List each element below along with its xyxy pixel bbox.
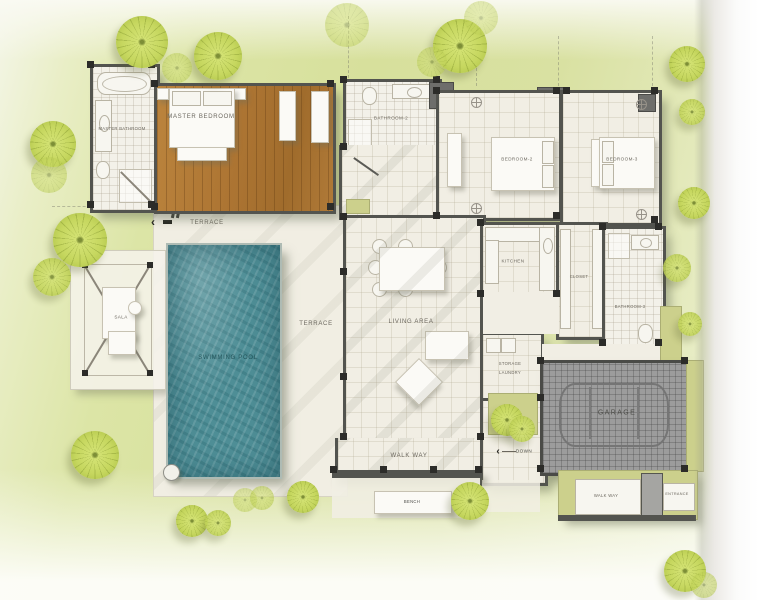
- nightstand: [157, 88, 169, 100]
- closet-label: CLOSET: [570, 275, 589, 279]
- wall-column: [477, 219, 484, 226]
- down-arrow-icon: ‹: [496, 447, 499, 457]
- toilet-icon: [638, 324, 653, 343]
- down-label: DOWN: [516, 450, 532, 455]
- bedroom-3-label: BEDROOM-3: [606, 158, 637, 163]
- wall-column: [433, 87, 440, 94]
- tree-icon: [31, 157, 67, 193]
- sala-label: SALA: [114, 316, 127, 321]
- closet: [556, 222, 608, 340]
- wall-column: [681, 465, 688, 472]
- sink-icon: [407, 87, 422, 98]
- sofa-angled: [395, 358, 443, 406]
- wall-column: [87, 61, 94, 68]
- tree-icon: [53, 213, 107, 267]
- wall-column: [340, 213, 347, 220]
- tree-icon: [116, 16, 168, 68]
- tree-icon: [162, 53, 192, 83]
- shower-diagonal: [120, 171, 151, 202]
- storage-label: STORAGE: [499, 362, 522, 366]
- wall-column: [340, 433, 347, 440]
- wall-column: [433, 212, 440, 219]
- terrace-top-label: TERRACE: [190, 220, 224, 226]
- master-bedroom-label: MASTER BEDROOM: [167, 114, 234, 120]
- wall-column: [340, 268, 347, 275]
- floor-plan: TERRACE TERRACE ‹ SALA SWIMMING POOL MAS…: [0, 0, 759, 600]
- tree-icon: [71, 431, 119, 479]
- shower-area: [608, 233, 630, 259]
- bathroom-2-label: BATHROOM-2: [374, 117, 408, 122]
- bathtub-icon: [97, 72, 151, 95]
- wall-column: [433, 76, 440, 83]
- wall-column: [330, 466, 337, 473]
- wall-column: [651, 87, 658, 94]
- down-arrow-line: [502, 451, 516, 452]
- wall-column: [537, 357, 544, 364]
- wall-column: [327, 203, 334, 210]
- door-marker-icon: [636, 209, 647, 220]
- master-bathroom: [90, 64, 160, 213]
- entrance-porch: [663, 483, 695, 511]
- planter-strip: [346, 199, 370, 214]
- page-edge: [694, 0, 759, 600]
- sala-post: [147, 262, 153, 268]
- sink-icon: [543, 238, 553, 254]
- door-marker-icon: [471, 97, 482, 108]
- nightstand: [234, 88, 246, 100]
- bathroom-3: [602, 226, 666, 350]
- entry-path: [482, 480, 540, 512]
- tree-icon: [509, 416, 535, 442]
- wall-column: [599, 339, 606, 346]
- bed-icon: [491, 137, 555, 191]
- bench-label: BENCH: [404, 500, 420, 504]
- door-marker-icon: [636, 99, 647, 110]
- entrance-label: ENTRANCE: [665, 493, 688, 497]
- tree-icon: [250, 486, 274, 510]
- tree-icon: [669, 46, 705, 82]
- pillow: [172, 91, 201, 106]
- wall-column: [340, 143, 347, 150]
- wall-column: [477, 433, 484, 440]
- wall-column: [681, 357, 688, 364]
- shower-area: [119, 169, 152, 203]
- tree-icon: [194, 32, 242, 80]
- laundry-label: LAUNDRY: [499, 371, 521, 375]
- entry-walkway-label: WALK WAY: [594, 494, 618, 498]
- wall-column: [655, 223, 662, 230]
- desk-cabinet: [447, 133, 462, 187]
- kitchen-counter: [539, 227, 555, 291]
- south-wall: [332, 470, 482, 478]
- vanity-counter: [392, 84, 434, 99]
- wall-column: [553, 87, 560, 94]
- entry-steps: [641, 473, 663, 519]
- wall-column: [340, 76, 347, 83]
- wall-column: [563, 87, 570, 94]
- wall-column: [553, 212, 560, 219]
- bedroom-2: [436, 90, 562, 221]
- wall-column: [475, 466, 482, 473]
- garage-label: GARAGE: [598, 410, 636, 417]
- south-wall: [558, 515, 696, 521]
- car-rear-line: [637, 387, 639, 439]
- vanity-counter: [631, 235, 659, 250]
- kitchen-label: KITCHEN: [502, 260, 525, 265]
- tree-icon: [451, 482, 489, 520]
- sala-post: [147, 370, 153, 376]
- pillow: [203, 91, 232, 106]
- tree-icon: [678, 187, 710, 219]
- bed-bench: [177, 147, 227, 161]
- car-windshield-line: [589, 387, 591, 439]
- bathroom-3-label: BATHROOM-3: [615, 305, 646, 309]
- side-path: [660, 306, 682, 364]
- bathtub-basin: [102, 76, 147, 92]
- wardrobe-cabinet: [311, 91, 329, 143]
- bed-icon: [599, 137, 655, 189]
- tree-icon: [678, 312, 702, 336]
- wall-column: [537, 394, 544, 401]
- tree-icon: [325, 3, 369, 47]
- service-corridor: [480, 292, 559, 334]
- bedroom-2-label: BEDROOM-2: [501, 158, 532, 163]
- tree-icon: [417, 47, 447, 77]
- wall-column: [537, 465, 544, 472]
- wall-column: [599, 223, 606, 230]
- toilet-icon: [362, 87, 377, 105]
- tree-icon: [464, 1, 498, 35]
- tree-icon: [176, 505, 208, 537]
- tree-icon: [205, 510, 231, 536]
- pool-ladder-icon: [163, 464, 180, 481]
- door-marker-icon: [471, 203, 482, 214]
- kitchen-counter: [485, 240, 499, 284]
- pillow: [602, 164, 614, 186]
- master-bedroom: [154, 83, 336, 214]
- wall-column: [380, 466, 387, 473]
- arrow-dash-icon: [163, 220, 172, 224]
- pillow: [542, 165, 554, 188]
- wall-column: [327, 80, 334, 87]
- master-bathroom-label: MASTER BATHROOM: [99, 127, 146, 131]
- tree-icon: [287, 481, 319, 513]
- tree-icon: [663, 254, 691, 282]
- walkway-label: WALK WAY: [390, 453, 427, 459]
- toilet-icon: [96, 161, 110, 179]
- swimming-pool: [166, 243, 282, 479]
- door-leaf: [354, 157, 379, 175]
- wall-column: [340, 373, 347, 380]
- tree-icon: [33, 258, 71, 296]
- terrace-side-label: TERRACE: [299, 321, 333, 327]
- wall-column: [151, 80, 158, 87]
- grid-line: [652, 36, 653, 86]
- tree-icon: [679, 99, 705, 125]
- tree-icon: [691, 572, 717, 598]
- wall-column: [477, 290, 484, 297]
- wall-column: [430, 466, 437, 473]
- wall-column: [553, 290, 560, 297]
- sala-ottoman: [108, 331, 136, 355]
- wall-column: [87, 201, 94, 208]
- sala-post: [82, 370, 88, 376]
- living-area: [343, 215, 486, 446]
- dryer-icon: [501, 338, 516, 353]
- sala-side-table: [128, 301, 142, 315]
- shower-area: [348, 119, 372, 147]
- grid-line: [558, 36, 559, 86]
- wall-column: [151, 203, 158, 210]
- pillow: [542, 141, 554, 164]
- swimming-pool-label: SWIMMING POOL: [198, 355, 257, 361]
- garage: [540, 360, 692, 476]
- dining-table: [379, 247, 445, 291]
- wall-column: [651, 216, 658, 223]
- direction-arrow-icon: ‹: [151, 216, 155, 228]
- sink-icon: [640, 238, 652, 248]
- washer-icon: [486, 338, 501, 353]
- wall-column: [655, 339, 662, 346]
- living-area-label: LIVING AREA: [388, 319, 433, 325]
- sofa: [425, 331, 469, 360]
- wardrobe-cabinet: [279, 91, 296, 141]
